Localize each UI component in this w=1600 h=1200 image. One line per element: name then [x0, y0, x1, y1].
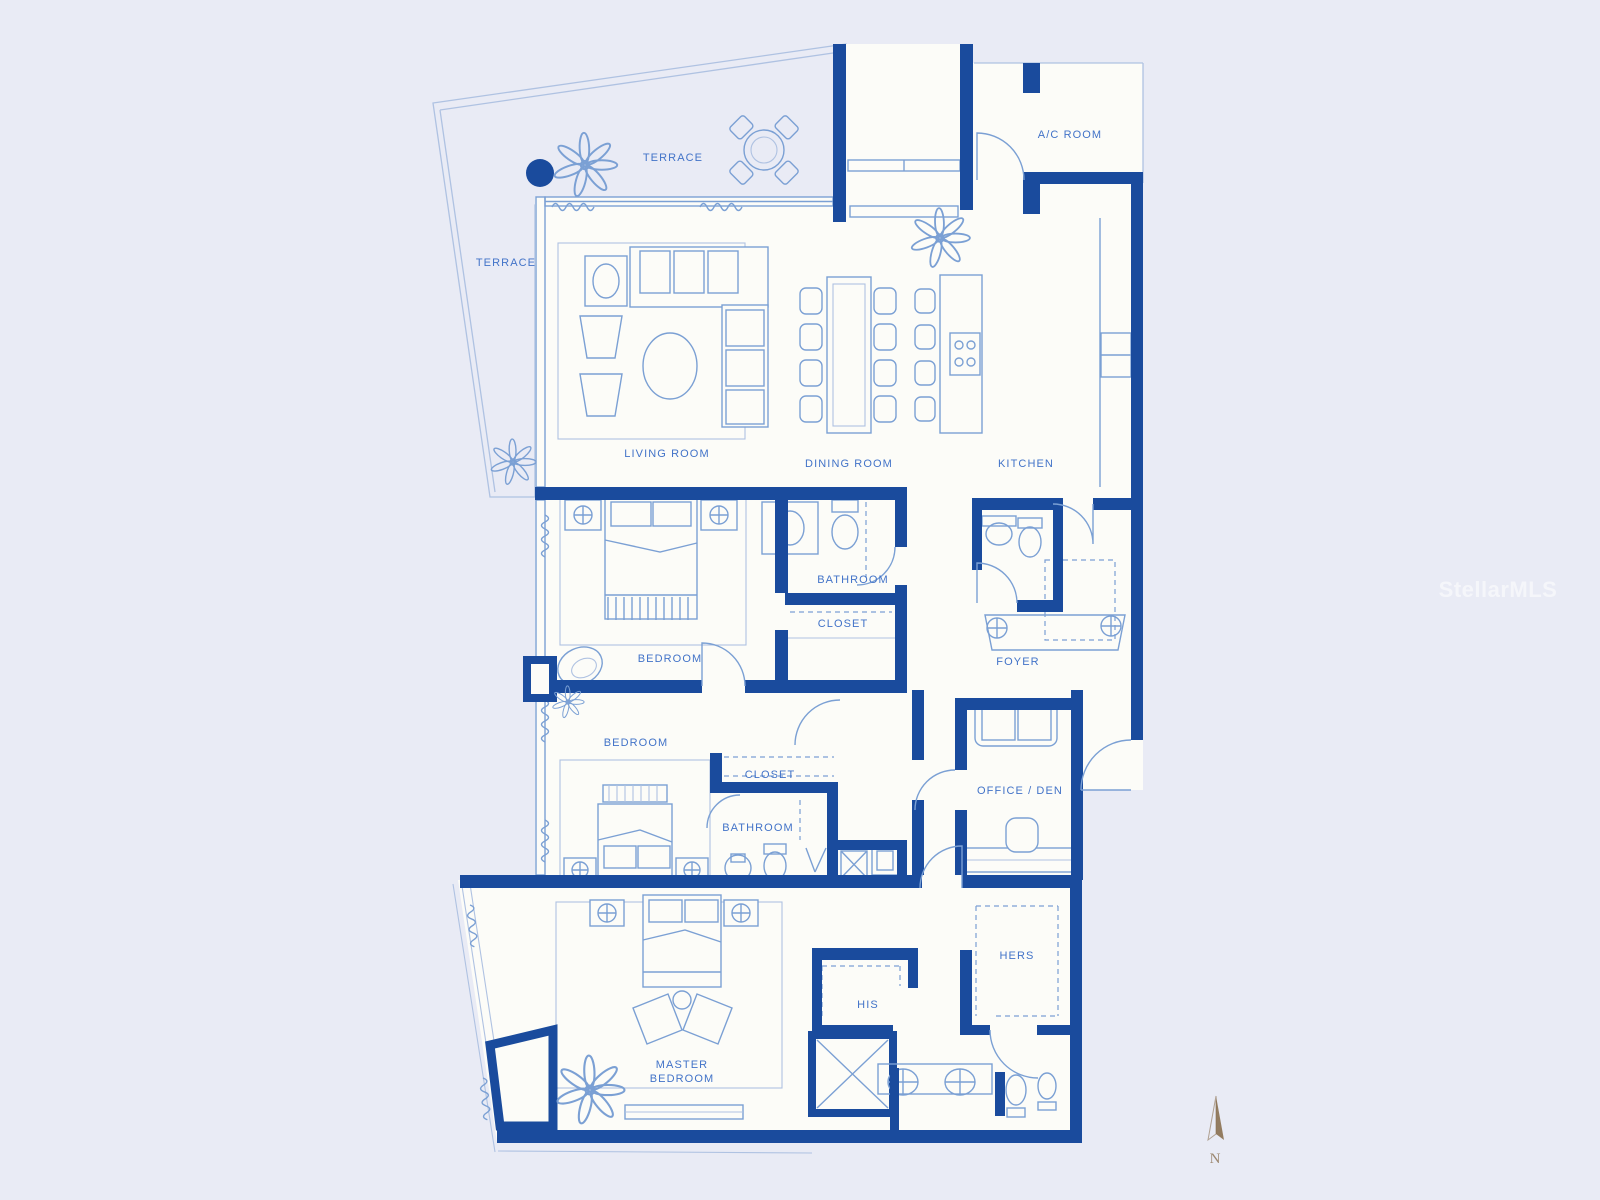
room-label-hers: HERS	[1000, 950, 1035, 962]
column-dot	[526, 159, 554, 187]
room-label-closet-1: CLOSET	[818, 618, 869, 630]
room-label-bedroom-1: BEDROOM	[638, 653, 703, 665]
room-label-kitchen: KITCHEN	[998, 458, 1054, 470]
room-label-master-line2: BEDROOM	[650, 1073, 715, 1085]
room-label-terrace-top: TERRACE	[643, 152, 703, 164]
room-label-his: HIS	[857, 999, 879, 1011]
room-label-bathroom-1: BATHROOM	[817, 574, 889, 586]
room-label-bathroom-2: BATHROOM	[722, 822, 794, 834]
utility-wedge-wall	[490, 1030, 553, 1126]
room-label-foyer: FOYER	[996, 656, 1039, 668]
north-arrow: N	[1208, 1096, 1224, 1167]
room-label-dining-room: DINING ROOM	[805, 458, 893, 470]
floor-plan-canvas: TERRACE TERRACE A/C ROOM LIVING ROOM DIN…	[0, 0, 1600, 1200]
room-label-office-den: OFFICE / DEN	[977, 785, 1063, 797]
room-label-terrace-left: TERRACE	[476, 257, 536, 269]
room-label-master-line1: MASTER	[656, 1059, 708, 1071]
north-label: N	[1210, 1151, 1221, 1167]
room-label-ac-room: A/C ROOM	[1038, 129, 1102, 141]
room-label-bedroom-2: BEDROOM	[604, 737, 669, 749]
room-label-closet-2: CLOSET	[745, 769, 796, 781]
watermark: StellarMLS	[1439, 577, 1558, 602]
room-label-living-room: LIVING ROOM	[624, 448, 709, 460]
